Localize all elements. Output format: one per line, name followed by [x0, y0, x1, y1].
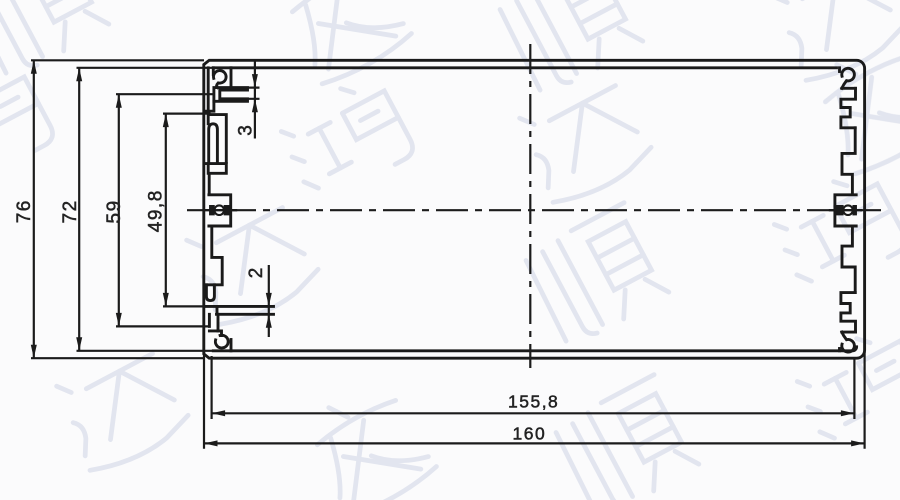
svg-text:59: 59: [104, 199, 125, 223]
svg-text:49,8: 49,8: [145, 189, 166, 232]
svg-text:72: 72: [60, 199, 81, 223]
svg-text:2: 2: [246, 266, 267, 278]
svg-text:155,8: 155,8: [508, 392, 559, 412]
svg-text:160: 160: [513, 424, 547, 444]
svg-text:3: 3: [235, 124, 256, 136]
svg-text:76: 76: [14, 199, 35, 223]
